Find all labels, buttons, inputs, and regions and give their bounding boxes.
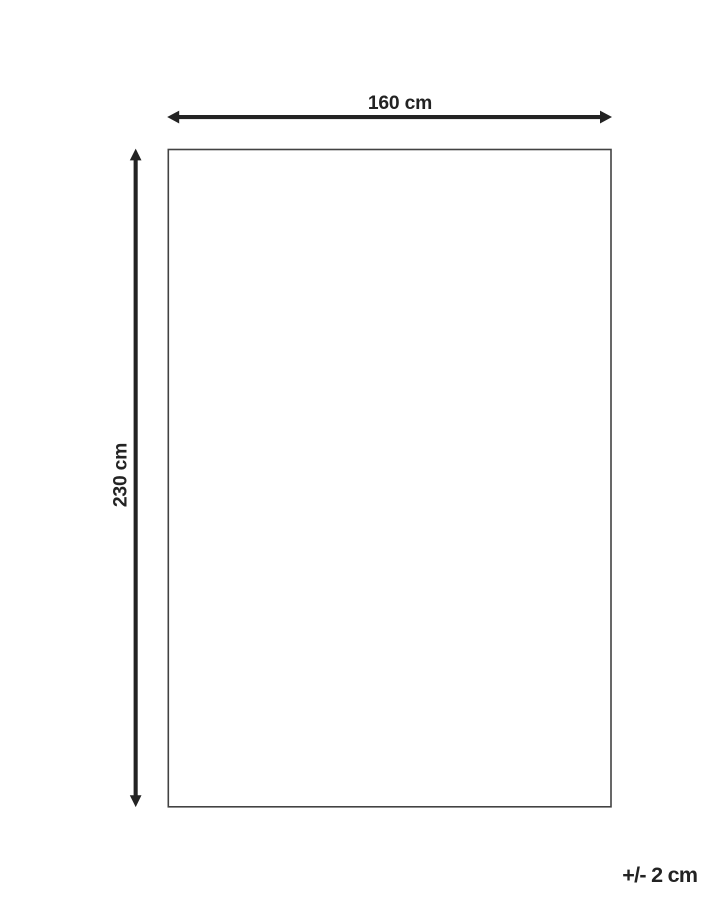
svg-text:160 cm: 160 cm <box>368 93 432 114</box>
svg-text:+/- 2 cm: +/- 2 cm <box>622 863 697 887</box>
svg-text:230 cm: 230 cm <box>111 443 132 507</box>
